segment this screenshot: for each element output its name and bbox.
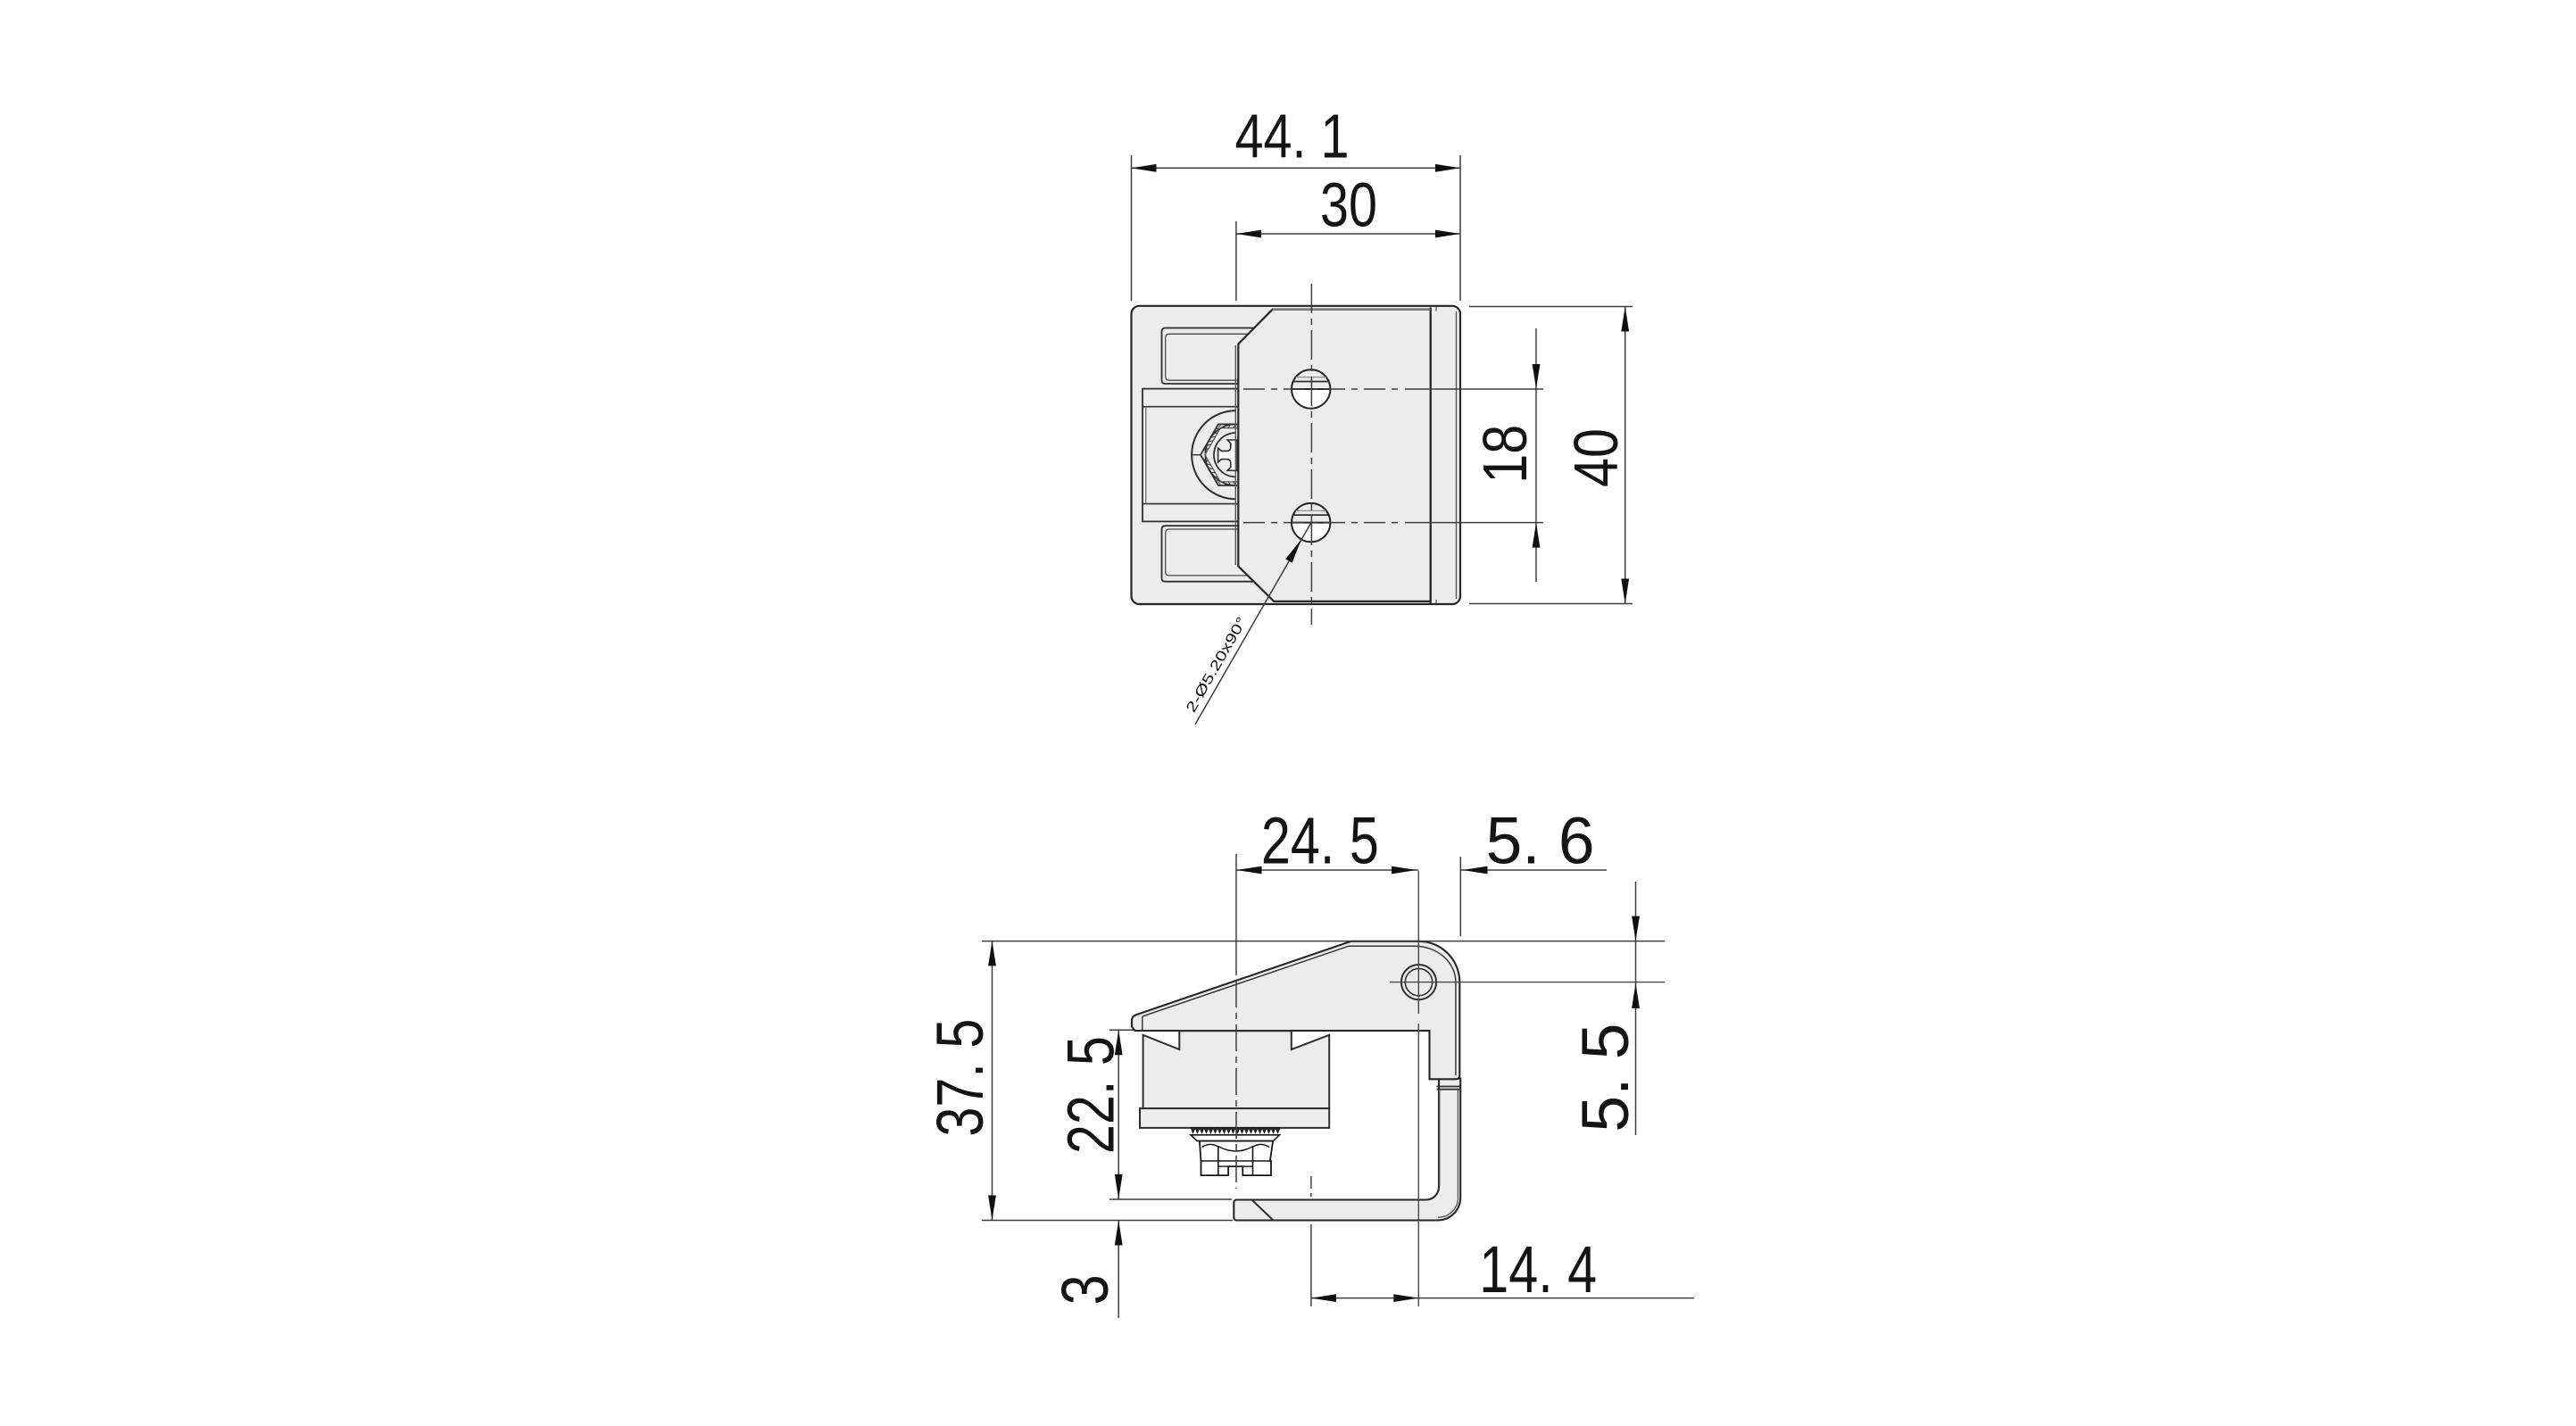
svg-text:40: 40 [1561,428,1631,487]
svg-text:14. 4: 14. 4 [1479,1232,1597,1306]
svg-text:5. 6: 5. 6 [1486,804,1595,878]
svg-text:37. 5: 37. 5 [923,1019,997,1137]
svg-text:5. 5: 5. 5 [1568,1024,1642,1132]
svg-text:3: 3 [1048,1274,1122,1305]
svg-text:30: 30 [1320,170,1377,240]
svg-text:18: 18 [1470,425,1540,484]
svg-text:2-Ø5.20x90°: 2-Ø5.20x90° [1184,615,1250,716]
svg-text:44. 1: 44. 1 [1235,102,1350,171]
svg-text:22. 5: 22. 5 [1053,1036,1127,1154]
svg-text:24. 5: 24. 5 [1261,804,1379,878]
